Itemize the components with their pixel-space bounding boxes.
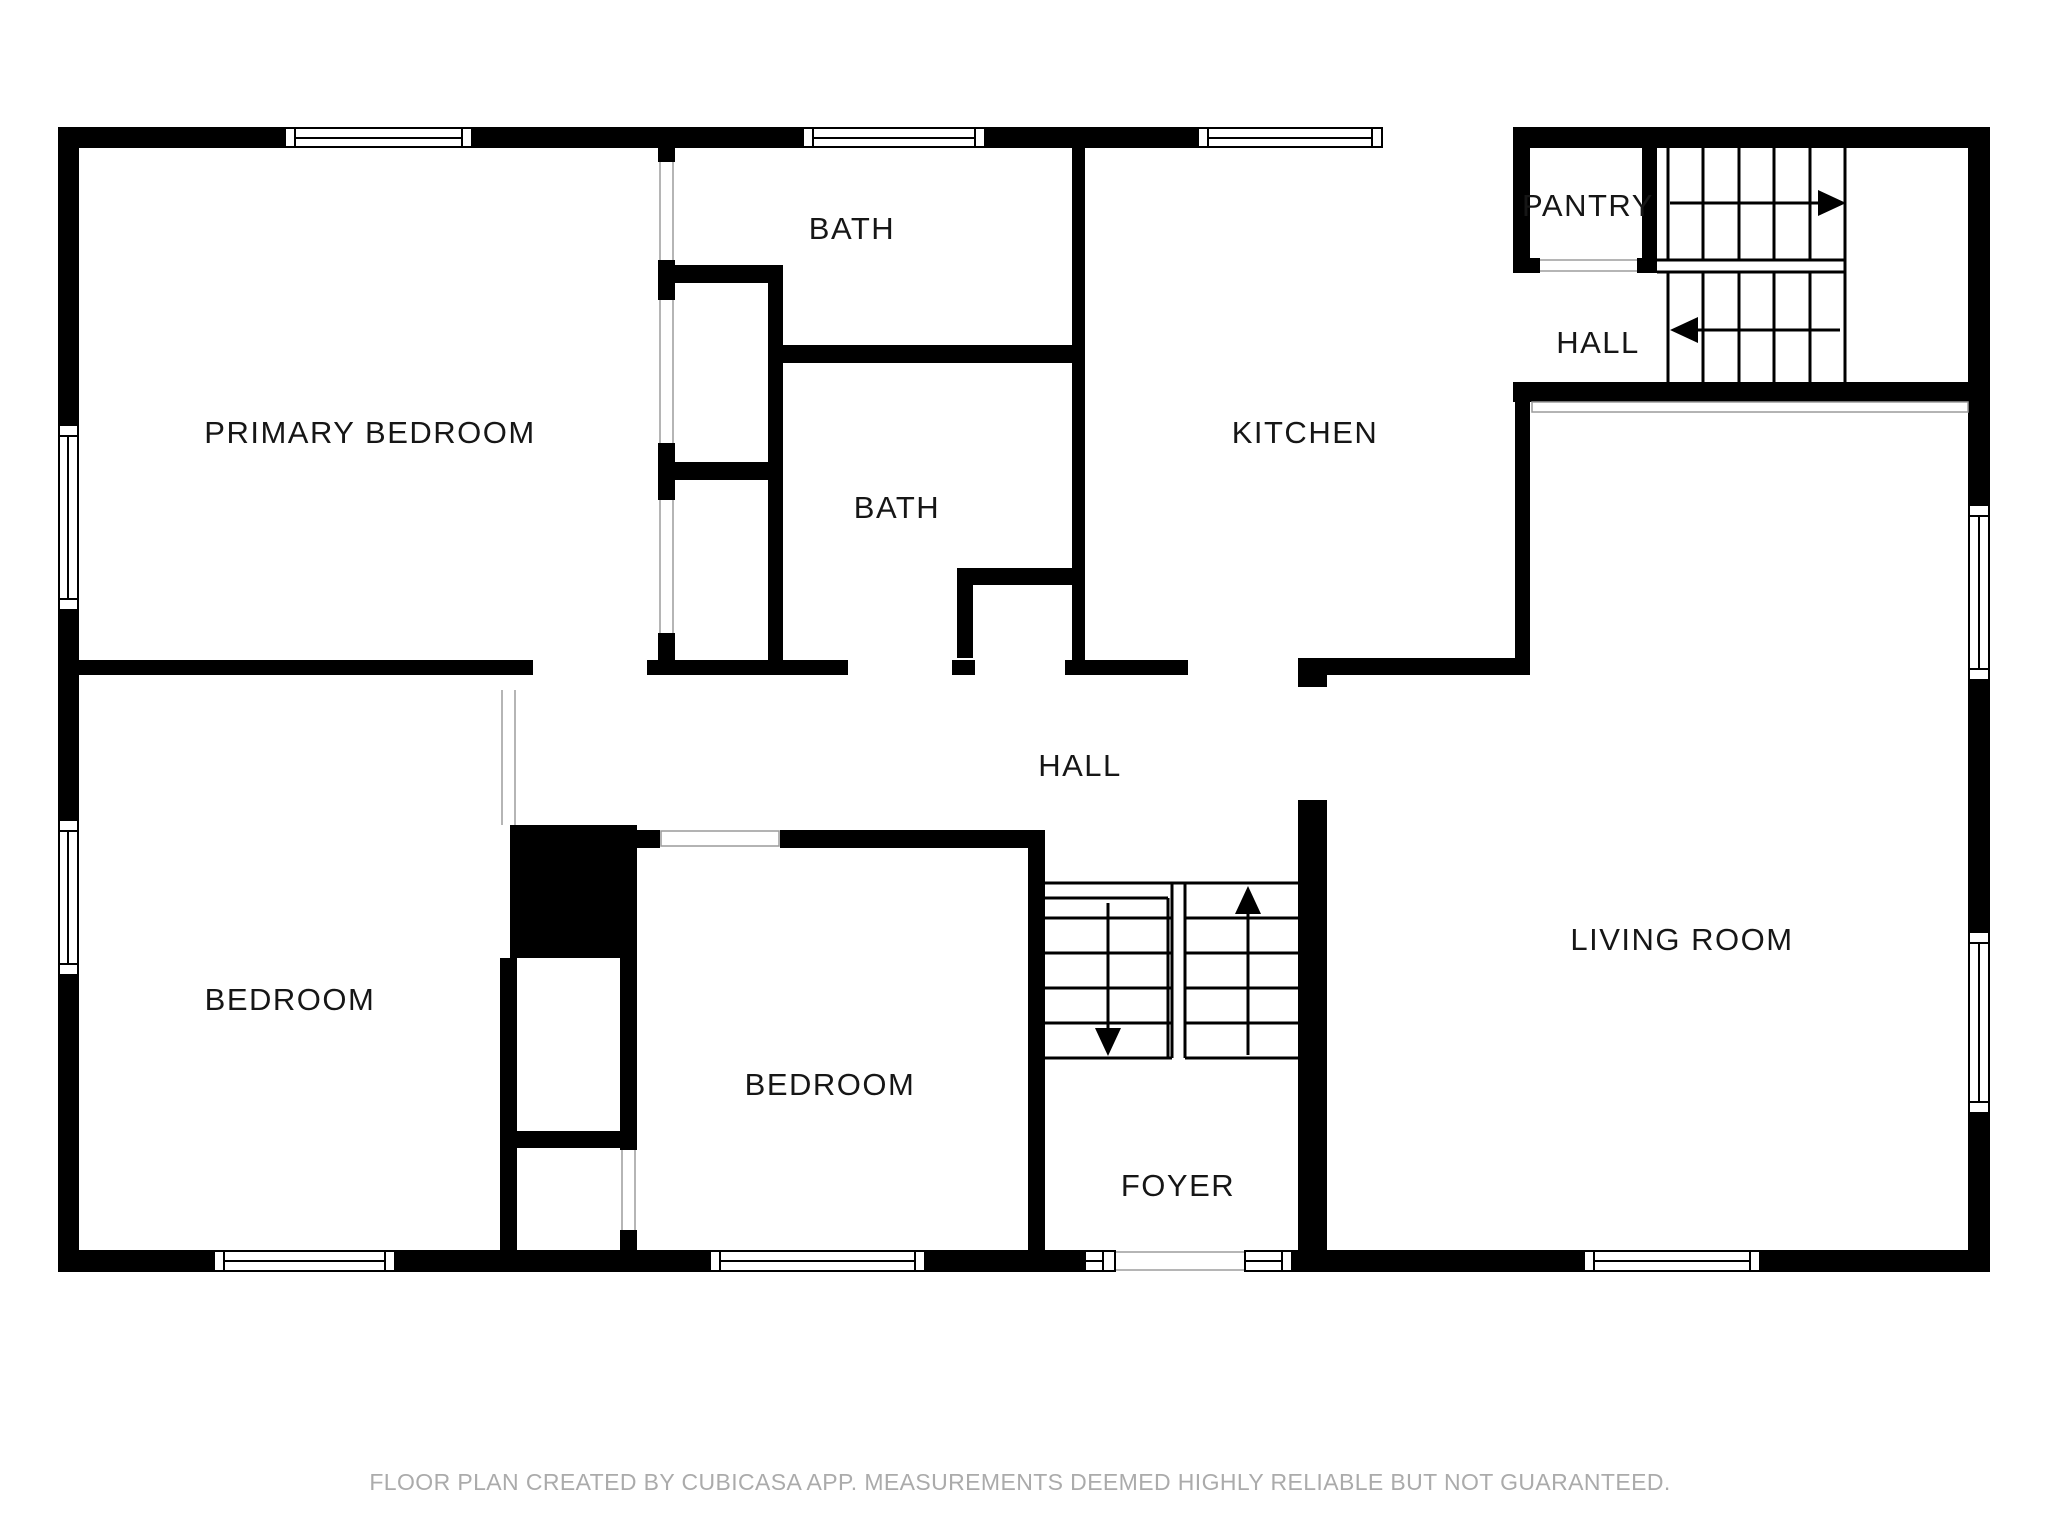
room-label-hall-upper-right: HALL [1556,325,1640,360]
window-bottom-1 [214,1251,395,1271]
window-left-1 [59,425,78,610]
window-right-2 [1969,932,1989,1113]
room-label-living-room: LIVING ROOM [1570,922,1793,957]
front-door-sidelight-right [1245,1251,1292,1271]
window-left-2 [59,820,78,975]
front-door-sidelight-left [1085,1251,1115,1271]
floor-plan-canvas: PRIMARY BEDROOM BATH BATH KITCHEN PANTRY… [0,0,2048,1536]
room-label-hall-middle: HALL [1038,748,1122,783]
room-label-pantry: PANTRY [1522,188,1654,223]
room-label-bedroom-middle: BEDROOM [745,1067,916,1102]
window-top-1 [285,128,472,147]
window-top-3 [1198,128,1382,147]
room-label-primary-bedroom: PRIMARY BEDROOM [204,415,535,450]
room-label-foyer: FOYER [1121,1168,1235,1203]
window-bottom-3 [1584,1251,1760,1271]
room-label-kitchen: KITCHEN [1232,415,1379,450]
plan-background [0,0,2048,1536]
window-right-1 [1969,505,1989,680]
window-top-2 [803,128,985,147]
room-label-bath-middle: BATH [854,490,940,525]
window-bottom-2 [710,1251,925,1271]
room-label-bath-top: BATH [809,211,895,246]
room-label-bedroom-left: BEDROOM [205,982,376,1017]
footer-disclaimer: FLOOR PLAN CREATED BY CUBICASA APP. MEAS… [369,1469,1670,1495]
